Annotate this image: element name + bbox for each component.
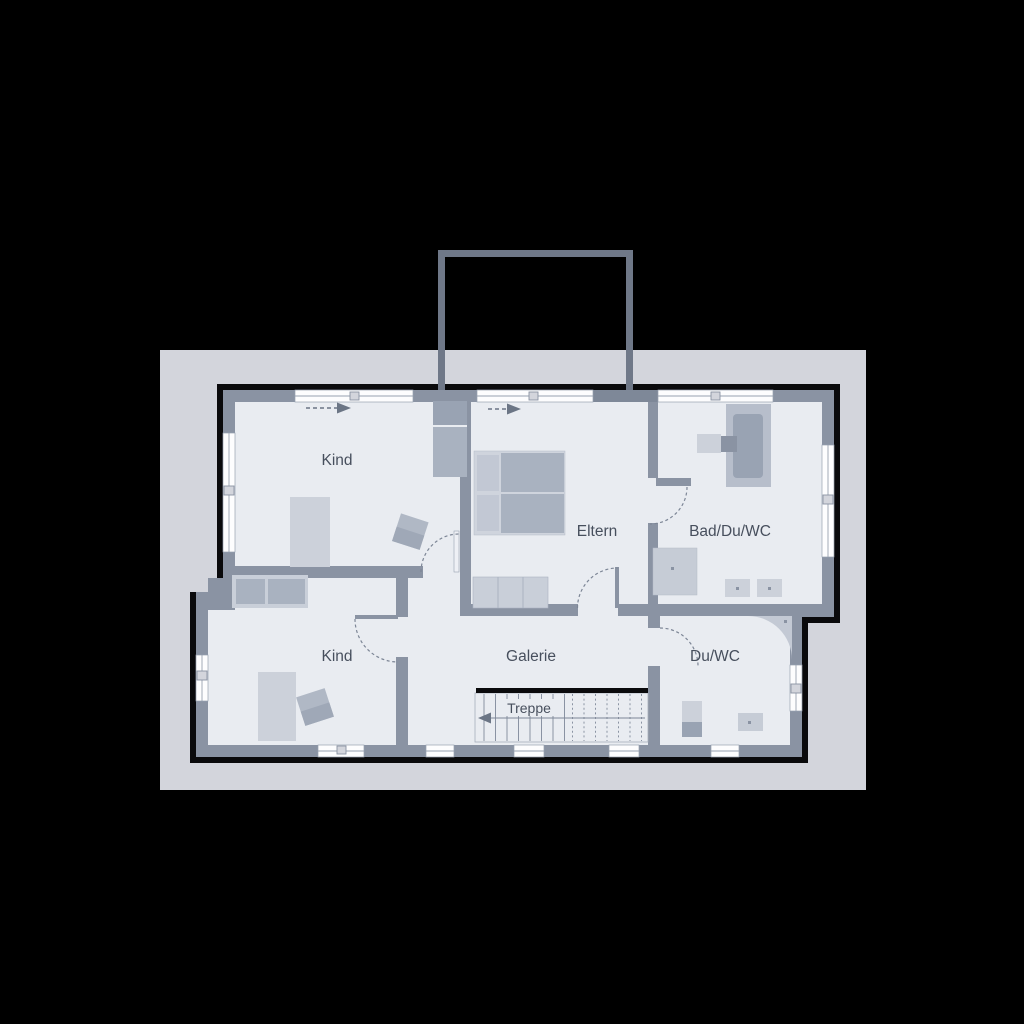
- mattress: [501, 453, 564, 492]
- mattress: [268, 579, 305, 604]
- mattress: [501, 494, 564, 533]
- chimney-top: [438, 250, 633, 257]
- outline-left-upper: [217, 384, 223, 598]
- wall-stub: [721, 436, 737, 452]
- pillow: [236, 579, 265, 604]
- outline-bottom: [190, 757, 808, 763]
- shower-drain: [784, 620, 787, 623]
- window-right-duwc: [790, 665, 802, 711]
- chimney-right: [626, 250, 633, 390]
- window-top-bad: [658, 390, 773, 402]
- wall-corner-fill: [208, 578, 235, 610]
- pillow: [477, 455, 499, 491]
- room-label-bad: Bad/Du/WC: [689, 523, 771, 540]
- basin-drain: [768, 587, 771, 590]
- window-right-bad: [822, 445, 834, 557]
- outline-left-lower: [190, 592, 196, 763]
- window-top-kind: [295, 390, 413, 402]
- wall-eltern-bad-upper: [648, 402, 658, 478]
- outline-right-lower: [802, 617, 808, 763]
- bathtub-inner: [733, 414, 763, 478]
- wardrobe-top: [433, 401, 467, 425]
- window-bottom-kind: [318, 745, 364, 757]
- chimney-left: [438, 250, 445, 390]
- outline-right-upper: [834, 384, 840, 623]
- outline-top: [217, 384, 840, 390]
- room-label-kind-top: Kind: [321, 452, 352, 469]
- window-top-eltern: [477, 390, 593, 402]
- wall-kind-bottom-upper: [396, 578, 408, 617]
- wall-duwc-upper: [648, 616, 660, 628]
- shower-drain: [671, 567, 674, 570]
- room-label-treppe: Treppe: [507, 700, 551, 716]
- wall-duwc-lower: [648, 666, 660, 745]
- room-label-kind-bottom: Kind: [321, 648, 352, 665]
- stair-top-edge: [476, 688, 648, 693]
- wall-bad-door-stub: [656, 478, 691, 486]
- wall-eltern-bottom-right: [618, 604, 648, 616]
- flue-block: [593, 390, 658, 402]
- wall-kind-bottom-lower: [396, 657, 408, 745]
- desk: [258, 672, 296, 741]
- basin-drain: [736, 587, 739, 590]
- toilet-bowl: [682, 701, 702, 722]
- window-left-kind-top: [223, 433, 235, 552]
- wall-bad-bottom: [648, 604, 822, 616]
- window-bottom-galerie-1: [426, 745, 454, 757]
- floor-plan-canvas: Treppe Kind Eltern Bad/Du/WC Kind Galeri…: [0, 0, 1024, 1024]
- room-label-eltern: Eltern: [577, 523, 618, 540]
- desk: [290, 497, 330, 567]
- window-left-kind-bottom: [196, 655, 208, 701]
- window-bottom-duwc: [711, 745, 739, 757]
- window-bottom-galerie-3: [609, 745, 639, 757]
- shower: [653, 548, 697, 595]
- room-label-duwc: Du/WC: [690, 648, 740, 665]
- wardrobe-divider: [433, 425, 467, 427]
- staircase: Treppe: [475, 688, 648, 742]
- dresser: [473, 577, 548, 608]
- basin-drain: [748, 721, 751, 724]
- window-bottom-galerie-2: [514, 745, 544, 757]
- washbasin: [697, 434, 721, 453]
- toilet-tank: [682, 722, 702, 737]
- room-label-galerie: Galerie: [506, 648, 556, 665]
- pillow: [477, 495, 499, 531]
